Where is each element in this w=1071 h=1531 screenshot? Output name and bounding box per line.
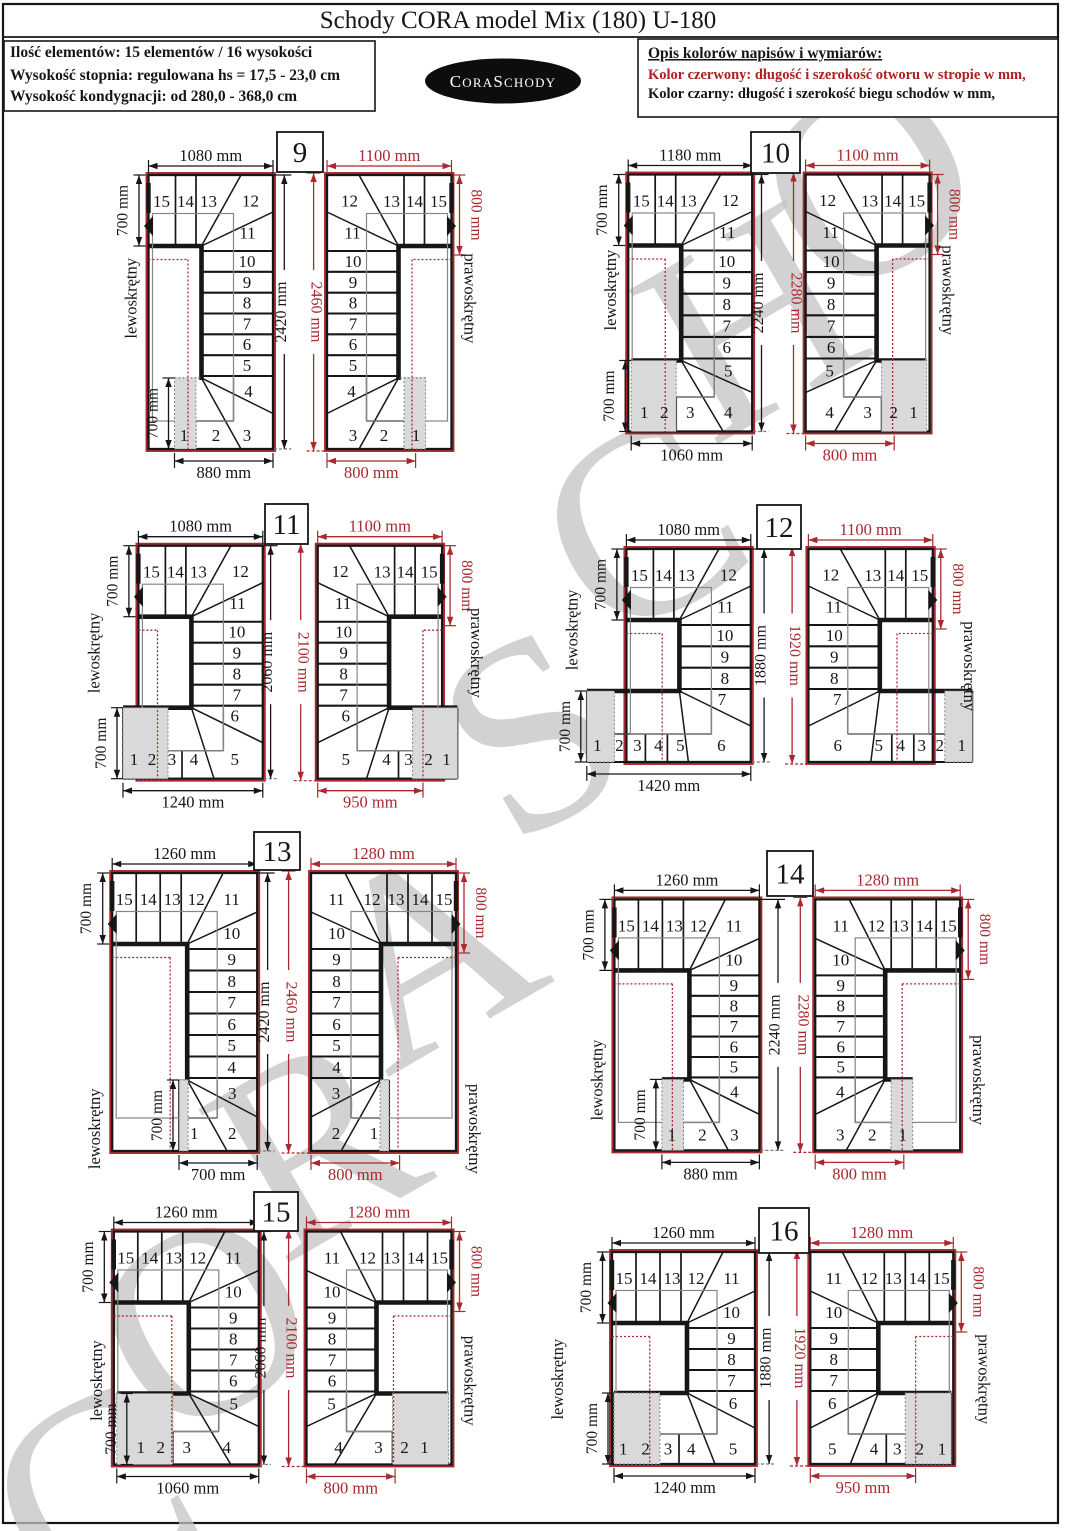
svg-text:1: 1: [180, 426, 189, 445]
svg-text:lewoskrętny: lewoskrętny: [562, 589, 581, 670]
svg-text:13: 13: [374, 563, 391, 582]
svg-text:5: 5: [836, 1058, 845, 1077]
svg-text:3: 3: [836, 1125, 845, 1144]
svg-text:12: 12: [242, 192, 259, 211]
svg-text:1260 mm: 1260 mm: [155, 1203, 218, 1222]
svg-text:1280 mm: 1280 mm: [352, 844, 415, 863]
svg-text:1: 1: [130, 750, 139, 769]
svg-text:700 mm: 700 mm: [80, 1241, 97, 1292]
svg-text:10: 10: [239, 252, 256, 271]
svg-text:950 mm: 950 mm: [836, 1478, 891, 1497]
svg-text:9: 9: [721, 648, 730, 667]
svg-text:3: 3: [332, 1084, 341, 1103]
svg-text:13: 13: [383, 192, 400, 211]
svg-text:10: 10: [718, 252, 735, 271]
svg-text:7: 7: [722, 317, 731, 336]
svg-text:3: 3: [183, 1438, 192, 1457]
svg-text:2240 mm: 2240 mm: [767, 994, 784, 1055]
svg-text:3: 3: [918, 736, 927, 755]
svg-text:5: 5: [231, 750, 240, 769]
svg-text:14: 14: [642, 916, 660, 935]
svg-text:1100 mm: 1100 mm: [358, 146, 420, 165]
svg-text:4: 4: [244, 382, 253, 401]
svg-text:7: 7: [332, 993, 341, 1012]
svg-text:10: 10: [832, 950, 849, 969]
svg-text:10: 10: [823, 252, 840, 271]
svg-text:4: 4: [687, 1439, 696, 1458]
svg-text:11: 11: [726, 916, 742, 935]
svg-text:1: 1: [370, 1124, 379, 1143]
svg-text:700 mm: 700 mm: [632, 1089, 649, 1140]
svg-text:2: 2: [157, 1438, 166, 1457]
svg-text:6: 6: [328, 1372, 337, 1391]
svg-text:700 mm: 700 mm: [93, 718, 110, 769]
svg-text:8: 8: [722, 295, 731, 314]
svg-text:2: 2: [615, 736, 624, 755]
svg-text:2280 mm: 2280 mm: [794, 994, 811, 1055]
svg-text:10: 10: [725, 950, 742, 969]
svg-text:11: 11: [826, 1269, 842, 1288]
svg-text:3: 3: [633, 736, 642, 755]
svg-text:15: 15: [911, 566, 928, 585]
svg-text:700 mm: 700 mm: [145, 388, 162, 439]
svg-text:15: 15: [631, 566, 648, 585]
svg-text:800 mm: 800 mm: [458, 560, 475, 611]
svg-text:2060 mm: 2060 mm: [252, 1317, 269, 1378]
svg-text:13: 13: [165, 1249, 182, 1268]
svg-text:13: 13: [666, 916, 683, 935]
svg-text:15: 15: [430, 192, 447, 211]
svg-text:8: 8: [328, 1330, 337, 1349]
svg-text:800 mm: 800 mm: [468, 189, 485, 240]
svg-text:1920 mm: 1920 mm: [786, 625, 803, 686]
svg-text:9: 9: [293, 137, 308, 169]
svg-text:6: 6: [231, 707, 240, 726]
svg-text:7: 7: [227, 993, 236, 1012]
svg-text:12: 12: [364, 890, 381, 909]
svg-text:lewoskrętny: lewoskrętny: [87, 1340, 106, 1421]
svg-text:7: 7: [727, 1371, 736, 1390]
svg-text:9: 9: [229, 1309, 238, 1328]
svg-text:4: 4: [654, 736, 663, 755]
svg-text:6: 6: [827, 338, 836, 357]
svg-text:800 mm: 800 mm: [823, 446, 878, 465]
svg-text:lewoskrętny: lewoskrętny: [601, 249, 620, 330]
svg-text:prawoskrętny: prawoskrętny: [974, 1334, 993, 1425]
svg-text:9: 9: [830, 1329, 839, 1348]
svg-text:14: 14: [140, 890, 158, 909]
svg-text:11: 11: [225, 1249, 241, 1268]
svg-text:700 mm: 700 mm: [78, 883, 95, 934]
svg-text:2: 2: [148, 750, 157, 769]
svg-text:2: 2: [332, 1124, 341, 1143]
svg-text:Kolor czerwony: długość i szer: Kolor czerwony: długość i szerokość otwo…: [648, 67, 1026, 83]
svg-text:11: 11: [717, 598, 733, 617]
svg-text:9: 9: [827, 273, 836, 292]
svg-text:1060 mm: 1060 mm: [156, 1479, 219, 1498]
svg-text:1: 1: [958, 736, 967, 755]
svg-text:12: 12: [232, 562, 249, 581]
svg-text:15: 15: [633, 192, 650, 211]
svg-text:3: 3: [686, 403, 695, 422]
svg-text:10: 10: [723, 1303, 740, 1322]
svg-text:11: 11: [833, 916, 849, 935]
svg-text:800 mm: 800 mm: [344, 463, 399, 482]
svg-text:9: 9: [339, 644, 348, 663]
svg-text:1: 1: [909, 403, 918, 422]
svg-text:8: 8: [836, 997, 845, 1016]
svg-text:3: 3: [243, 426, 252, 445]
svg-text:10: 10: [345, 252, 362, 271]
svg-text:prawoskrętny: prawoskrętny: [960, 621, 979, 712]
svg-text:7: 7: [833, 690, 842, 709]
svg-text:10: 10: [324, 1283, 341, 1302]
svg-text:8: 8: [727, 1350, 736, 1369]
svg-text:2060 mm: 2060 mm: [259, 631, 276, 692]
svg-text:4: 4: [825, 403, 834, 422]
svg-text:8: 8: [830, 669, 839, 688]
svg-text:14: 14: [776, 859, 806, 891]
svg-text:9: 9: [332, 950, 341, 969]
svg-text:1: 1: [412, 426, 421, 445]
svg-text:1: 1: [190, 1124, 199, 1143]
svg-text:1280 mm: 1280 mm: [856, 870, 919, 889]
svg-text:5: 5: [825, 362, 834, 381]
svg-text:1260 mm: 1260 mm: [656, 870, 719, 889]
svg-text:CORASCHODY: CORASCHODY: [450, 72, 557, 91]
svg-text:800 mm: 800 mm: [832, 1164, 887, 1183]
svg-text:11: 11: [826, 598, 842, 617]
svg-text:10: 10: [335, 623, 352, 642]
svg-text:1920 mm: 1920 mm: [791, 1328, 808, 1389]
svg-text:5: 5: [730, 1058, 739, 1077]
svg-text:lewoskrętny: lewoskrętny: [587, 1039, 606, 1120]
svg-text:11: 11: [324, 1249, 340, 1268]
svg-text:12: 12: [722, 191, 739, 210]
svg-text:7: 7: [730, 1017, 739, 1036]
svg-text:3: 3: [863, 403, 872, 422]
svg-text:10: 10: [328, 924, 345, 943]
svg-text:Kolor czarny: długość i szerok: Kolor czarny: długość i szerokość biegu …: [648, 86, 995, 102]
svg-text:14: 14: [412, 890, 430, 909]
svg-text:13: 13: [885, 1269, 902, 1288]
svg-text:13: 13: [664, 1269, 681, 1288]
svg-text:1: 1: [938, 1439, 947, 1458]
svg-text:4: 4: [724, 403, 733, 422]
svg-text:12: 12: [688, 1269, 705, 1288]
svg-text:1100 mm: 1100 mm: [349, 517, 411, 536]
svg-text:5: 5: [349, 356, 358, 375]
svg-text:6: 6: [722, 338, 731, 357]
svg-text:1: 1: [420, 1438, 429, 1457]
svg-text:Ilość elementów: 15 elementów: Ilość elementów: 15 elementów / 16 wysok…: [10, 44, 313, 61]
svg-text:4: 4: [347, 382, 356, 401]
svg-text:8: 8: [332, 972, 341, 991]
svg-text:1280 mm: 1280 mm: [348, 1203, 411, 1222]
svg-text:5: 5: [243, 356, 252, 375]
svg-text:10: 10: [825, 1303, 842, 1322]
svg-text:1880 mm: 1880 mm: [753, 625, 770, 686]
svg-text:880 mm: 880 mm: [683, 1164, 738, 1183]
svg-text:7: 7: [328, 1351, 337, 1370]
svg-text:Opis kolorów napisów i wymiaró: Opis kolorów napisów i wymiarów:: [648, 45, 882, 62]
svg-text:2: 2: [228, 1124, 237, 1143]
svg-text:10: 10: [826, 626, 843, 645]
svg-text:15: 15: [431, 1249, 448, 1268]
svg-text:700 mm: 700 mm: [584, 1403, 601, 1454]
svg-text:1: 1: [619, 1439, 628, 1458]
svg-text:2: 2: [915, 1439, 924, 1458]
svg-text:13: 13: [892, 916, 909, 935]
svg-text:800 mm: 800 mm: [324, 1479, 379, 1498]
svg-text:9: 9: [836, 976, 845, 995]
svg-text:1420 mm: 1420 mm: [637, 776, 700, 795]
svg-text:12: 12: [341, 192, 358, 211]
svg-text:8: 8: [349, 294, 358, 313]
svg-text:11: 11: [229, 594, 245, 613]
svg-text:700 mm: 700 mm: [592, 559, 609, 610]
svg-text:8: 8: [339, 665, 348, 684]
svg-text:12: 12: [765, 512, 794, 544]
svg-text:2: 2: [660, 403, 669, 422]
svg-text:12: 12: [819, 191, 836, 210]
svg-text:3: 3: [349, 426, 358, 445]
svg-text:14: 14: [887, 566, 905, 585]
svg-text:13: 13: [164, 890, 181, 909]
svg-text:1100 mm: 1100 mm: [837, 146, 899, 165]
svg-text:5: 5: [828, 1439, 837, 1458]
svg-text:1880 mm: 1880 mm: [758, 1327, 775, 1388]
svg-text:8: 8: [830, 1350, 839, 1369]
svg-text:4: 4: [897, 736, 906, 755]
svg-text:9: 9: [243, 273, 252, 292]
svg-text:15: 15: [908, 192, 925, 211]
svg-text:3: 3: [228, 1084, 237, 1103]
svg-text:1060 mm: 1060 mm: [660, 446, 723, 465]
svg-text:1180 mm: 1180 mm: [659, 146, 721, 165]
svg-text:1: 1: [593, 736, 602, 755]
svg-text:lewoskrętny: lewoskrętny: [84, 612, 103, 693]
svg-text:800 mm: 800 mm: [468, 1246, 485, 1297]
svg-text:4: 4: [870, 1439, 879, 1458]
svg-text:1: 1: [898, 1125, 907, 1144]
svg-text:9: 9: [349, 273, 358, 292]
svg-text:2: 2: [698, 1125, 707, 1144]
svg-text:1240 mm: 1240 mm: [653, 1478, 716, 1497]
svg-text:9: 9: [722, 273, 731, 292]
svg-text:13: 13: [678, 566, 695, 585]
svg-text:880 mm: 880 mm: [197, 463, 252, 482]
svg-text:11: 11: [344, 224, 360, 243]
svg-text:13: 13: [383, 1249, 400, 1268]
svg-text:15: 15: [933, 1269, 950, 1288]
svg-text:3: 3: [730, 1125, 739, 1144]
svg-text:6: 6: [729, 1394, 738, 1413]
svg-text:2: 2: [889, 403, 898, 422]
svg-text:2: 2: [641, 1439, 650, 1458]
svg-text:9: 9: [830, 648, 839, 667]
svg-text:2: 2: [400, 1438, 409, 1457]
svg-text:11: 11: [273, 509, 301, 541]
svg-text:800 mm: 800 mm: [472, 887, 489, 938]
svg-text:13: 13: [200, 192, 217, 211]
svg-text:prawoskrętny: prawoskrętny: [465, 1084, 484, 1175]
svg-text:10: 10: [223, 924, 240, 943]
svg-text:6: 6: [229, 1372, 238, 1391]
svg-text:9: 9: [227, 950, 236, 969]
svg-text:lewoskrętny: lewoskrętny: [85, 1088, 104, 1169]
svg-text:15: 15: [117, 1249, 134, 1268]
svg-text:10: 10: [225, 1283, 242, 1302]
svg-text:3: 3: [404, 750, 413, 769]
svg-text:3: 3: [893, 1439, 902, 1458]
svg-text:2: 2: [936, 736, 945, 755]
svg-text:9: 9: [233, 644, 242, 663]
svg-text:12: 12: [359, 1249, 376, 1268]
svg-text:2460 mm: 2460 mm: [283, 982, 300, 1043]
svg-text:5: 5: [729, 1439, 738, 1458]
svg-text:1080 mm: 1080 mm: [179, 146, 242, 165]
svg-text:2240 mm: 2240 mm: [750, 272, 767, 333]
svg-text:1: 1: [137, 1438, 146, 1457]
svg-text:Schody CORA model Mix (180) U-: Schody CORA model Mix (180) U-180: [320, 7, 717, 34]
svg-text:prawoskrętny: prawoskrętny: [969, 1035, 988, 1126]
svg-text:8: 8: [229, 1330, 238, 1349]
svg-text:1260 mm: 1260 mm: [652, 1223, 715, 1242]
svg-text:700 mm: 700 mm: [104, 556, 121, 607]
svg-text:1240 mm: 1240 mm: [162, 793, 225, 812]
svg-text:7: 7: [349, 314, 358, 333]
svg-text:800 mm: 800 mm: [946, 189, 963, 240]
svg-text:6: 6: [243, 335, 252, 354]
svg-text:11: 11: [328, 890, 344, 909]
svg-text:700 mm: 700 mm: [191, 1165, 246, 1184]
svg-text:prawoskrętny: prawoskrętny: [461, 253, 480, 344]
svg-text:15: 15: [153, 192, 170, 211]
svg-text:2: 2: [868, 1125, 877, 1144]
svg-text:7: 7: [718, 690, 727, 709]
svg-text:4: 4: [836, 1082, 845, 1101]
svg-text:11: 11: [723, 1269, 739, 1288]
svg-text:2: 2: [212, 426, 221, 445]
svg-text:12: 12: [332, 562, 349, 581]
svg-text:7: 7: [836, 1017, 845, 1036]
svg-text:12: 12: [720, 566, 737, 585]
svg-text:1280 mm: 1280 mm: [850, 1223, 913, 1242]
svg-text:3: 3: [664, 1439, 673, 1458]
svg-text:8: 8: [721, 669, 730, 688]
svg-text:10: 10: [228, 623, 245, 642]
svg-text:6: 6: [341, 707, 350, 726]
svg-text:2100 mm: 2100 mm: [283, 1318, 300, 1379]
svg-text:800 mm: 800 mm: [969, 1266, 986, 1317]
svg-text:11: 11: [224, 890, 240, 909]
svg-text:13: 13: [190, 563, 207, 582]
svg-text:11: 11: [335, 594, 351, 613]
svg-text:1: 1: [668, 1125, 677, 1144]
svg-text:4: 4: [227, 1058, 236, 1077]
svg-text:10: 10: [716, 626, 733, 645]
svg-text:13: 13: [388, 890, 405, 909]
svg-text:12: 12: [868, 916, 885, 935]
svg-text:800 mm: 800 mm: [949, 563, 966, 614]
svg-text:800 mm: 800 mm: [976, 914, 993, 965]
svg-text:14: 14: [167, 563, 185, 582]
svg-text:800 mm: 800 mm: [328, 1165, 383, 1184]
svg-text:2: 2: [424, 750, 433, 769]
svg-text:7: 7: [233, 686, 242, 705]
svg-text:3: 3: [374, 1438, 383, 1457]
svg-text:5: 5: [724, 362, 733, 381]
svg-text:700 mm: 700 mm: [149, 1090, 166, 1141]
svg-text:8: 8: [730, 997, 739, 1016]
svg-text:11: 11: [719, 223, 735, 242]
svg-text:14: 14: [141, 1249, 159, 1268]
svg-text:4: 4: [382, 750, 391, 769]
svg-text:7: 7: [339, 686, 348, 705]
svg-text:8: 8: [227, 972, 236, 991]
svg-text:8: 8: [233, 665, 242, 684]
svg-text:14: 14: [406, 192, 424, 211]
svg-text:14: 14: [397, 563, 415, 582]
svg-text:15: 15: [116, 890, 133, 909]
svg-text:5: 5: [230, 1395, 239, 1414]
svg-text:6: 6: [836, 1037, 845, 1056]
svg-text:10: 10: [761, 138, 790, 170]
svg-text:6: 6: [730, 1037, 739, 1056]
svg-text:6: 6: [717, 736, 726, 755]
svg-text:2280 mm: 2280 mm: [788, 273, 805, 334]
svg-text:prawoskrętny: prawoskrętny: [939, 245, 958, 336]
svg-text:12: 12: [822, 566, 839, 585]
svg-text:12: 12: [690, 916, 707, 935]
svg-text:12: 12: [189, 1249, 206, 1268]
svg-text:15: 15: [940, 916, 957, 935]
svg-text:1100 mm: 1100 mm: [840, 520, 902, 539]
svg-text:4: 4: [730, 1082, 739, 1101]
svg-text:15: 15: [262, 1197, 291, 1229]
svg-text:2420 mm: 2420 mm: [256, 981, 273, 1042]
svg-text:prawoskrętny: prawoskrętny: [467, 608, 486, 699]
svg-text:7: 7: [229, 1351, 238, 1370]
svg-text:9: 9: [328, 1309, 337, 1328]
svg-text:13: 13: [263, 836, 292, 868]
svg-text:6: 6: [332, 1015, 341, 1034]
svg-text:6: 6: [349, 335, 358, 354]
svg-text:1: 1: [442, 750, 451, 769]
svg-text:2100 mm: 2100 mm: [295, 632, 312, 693]
svg-text:6: 6: [834, 736, 843, 755]
svg-text:15: 15: [436, 890, 453, 909]
svg-text:15: 15: [143, 563, 160, 582]
svg-text:7: 7: [243, 314, 252, 333]
svg-text:1260 mm: 1260 mm: [153, 844, 216, 863]
svg-text:4: 4: [332, 1058, 341, 1077]
svg-text:950 mm: 950 mm: [343, 793, 398, 812]
svg-text:7: 7: [827, 317, 836, 336]
svg-text:13: 13: [861, 192, 878, 211]
svg-text:1: 1: [640, 403, 649, 422]
svg-text:3: 3: [168, 750, 177, 769]
svg-text:6: 6: [227, 1015, 236, 1034]
svg-text:14: 14: [407, 1249, 425, 1268]
svg-text:700 mm: 700 mm: [578, 1262, 595, 1313]
svg-text:11: 11: [822, 223, 838, 242]
svg-text:14: 14: [655, 566, 673, 585]
svg-text:14: 14: [657, 192, 675, 211]
svg-text:14: 14: [916, 916, 934, 935]
svg-text:700 mm: 700 mm: [557, 701, 574, 752]
